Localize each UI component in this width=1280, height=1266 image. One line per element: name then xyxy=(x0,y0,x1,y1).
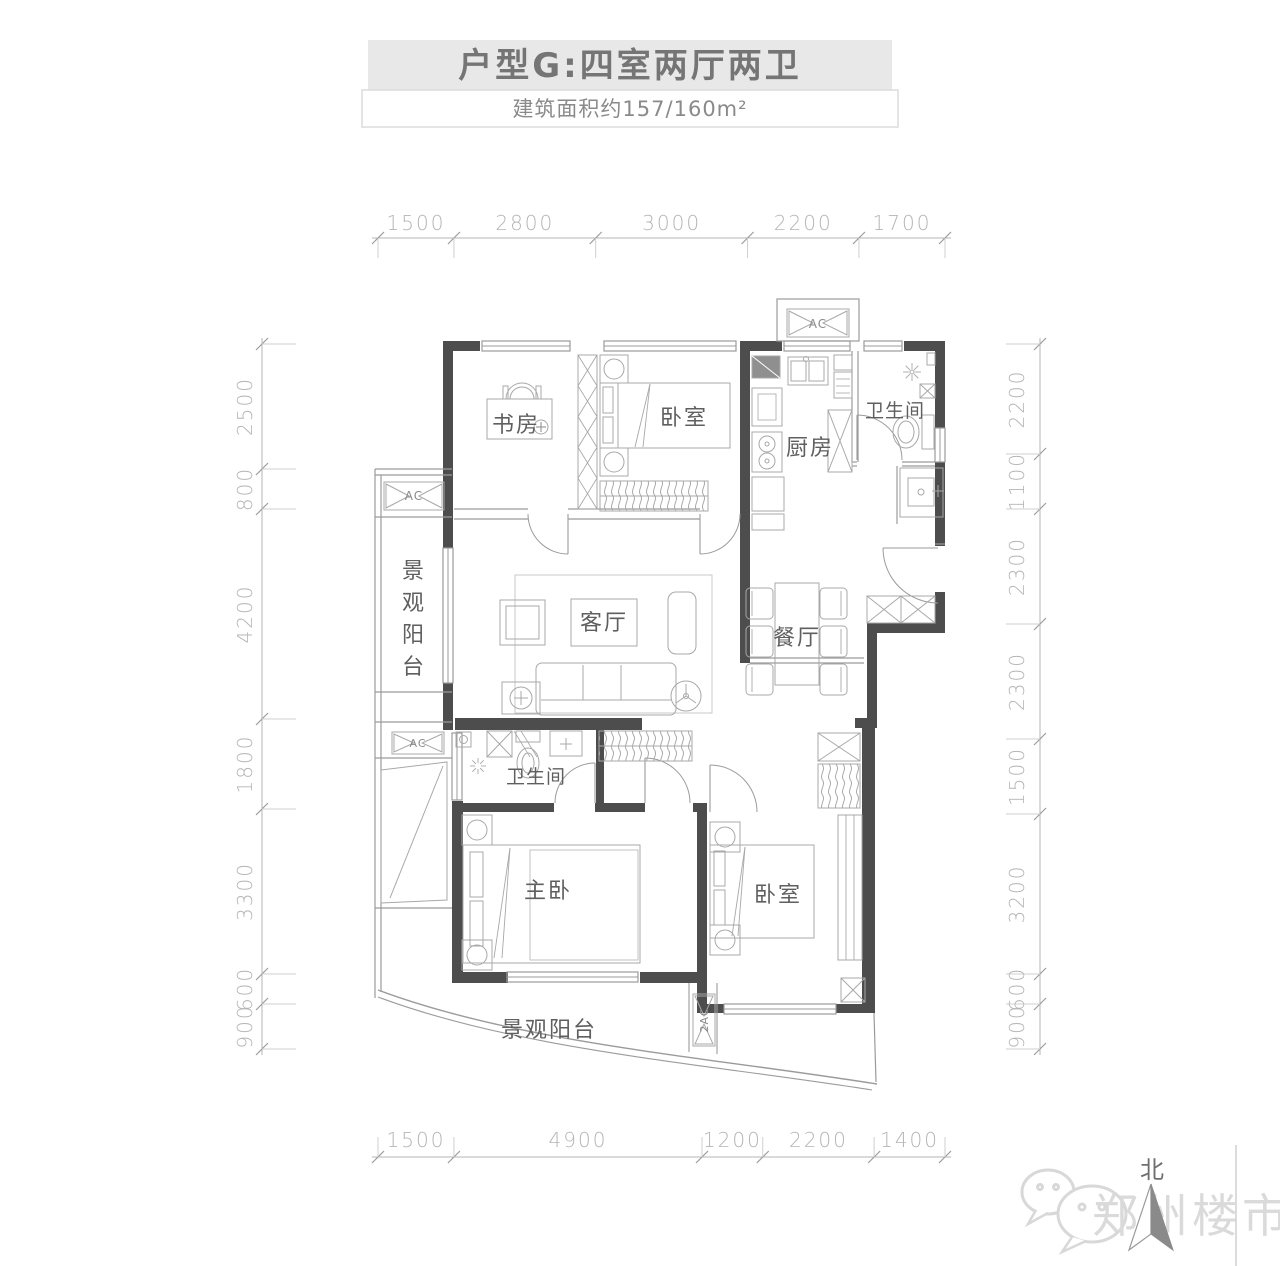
area-subtitle: 建筑面积约157/160m² xyxy=(512,97,747,121)
svg-text:2200: 2200 xyxy=(774,211,833,235)
room-label-kitchen: 厨房 xyxy=(786,436,834,461)
svg-text:4900: 4900 xyxy=(549,1128,608,1152)
room-label-bedroom-top: 卧室 xyxy=(660,406,708,431)
svg-text:2200: 2200 xyxy=(1005,370,1029,429)
svg-text:1500: 1500 xyxy=(387,211,446,235)
svg-text:2800: 2800 xyxy=(495,211,554,235)
ac-label-bottom: 2AC xyxy=(698,1007,711,1032)
watermark-brand-text: 郑州楼市 xyxy=(1092,1189,1280,1243)
svg-text:1200: 1200 xyxy=(703,1128,762,1152)
svg-text:1500: 1500 xyxy=(387,1128,446,1152)
north-label: 北 xyxy=(1140,1156,1164,1184)
room-label-bedroom-right: 卧室 xyxy=(754,883,802,908)
svg-text:1500: 1500 xyxy=(1005,747,1029,806)
ac-label-top: AC xyxy=(809,317,827,331)
svg-text:2300: 2300 xyxy=(1005,537,1029,596)
svg-text:900: 900 xyxy=(1005,1004,1029,1048)
ac-labels: AC AC AC 2AC xyxy=(405,317,827,1033)
svg-text:3200: 3200 xyxy=(1005,865,1029,924)
room-label-balcony-left: 景观阳台 xyxy=(402,559,426,680)
svg-text:4200: 4200 xyxy=(233,585,257,644)
svg-text:900: 900 xyxy=(233,1004,257,1048)
room-label-study: 书房 xyxy=(492,413,540,438)
ac-label-left-mid: AC xyxy=(409,737,426,750)
svg-text:1800: 1800 xyxy=(233,735,257,794)
floorplan-canvas: 户型G:四室两厅两卫 建筑面积约157/160m² 15002800300022… xyxy=(0,0,1280,1266)
page-title: 户型G:四室两厅两卫 xyxy=(458,46,802,86)
room-label-master: 主卧 xyxy=(524,879,572,904)
svg-text:2500: 2500 xyxy=(233,377,257,436)
room-label-bath-mid: 卫生间 xyxy=(506,766,566,788)
svg-text:800: 800 xyxy=(233,467,257,511)
header: 户型G:四室两厅两卫 建筑面积约157/160m² xyxy=(362,40,898,127)
svg-text:3300: 3300 xyxy=(233,862,257,921)
svg-text:1100: 1100 xyxy=(1005,452,1029,511)
ac-label-left-top: AC xyxy=(405,489,423,503)
svg-text:2200: 2200 xyxy=(789,1128,848,1152)
dimension-annotations: 1500280030002200170015004900120022001400… xyxy=(233,211,1046,1163)
svg-text:2300: 2300 xyxy=(1005,652,1029,711)
room-label-living: 客厅 xyxy=(580,611,628,636)
room-label-balcony-bottom: 景观阳台 xyxy=(501,1018,597,1043)
room-label-dining: 餐厅 xyxy=(773,626,821,651)
room-label-bath-top: 卫生间 xyxy=(865,400,925,422)
svg-text:3000: 3000 xyxy=(642,211,701,235)
svg-text:1700: 1700 xyxy=(873,211,932,235)
svg-text:1400: 1400 xyxy=(880,1128,939,1152)
